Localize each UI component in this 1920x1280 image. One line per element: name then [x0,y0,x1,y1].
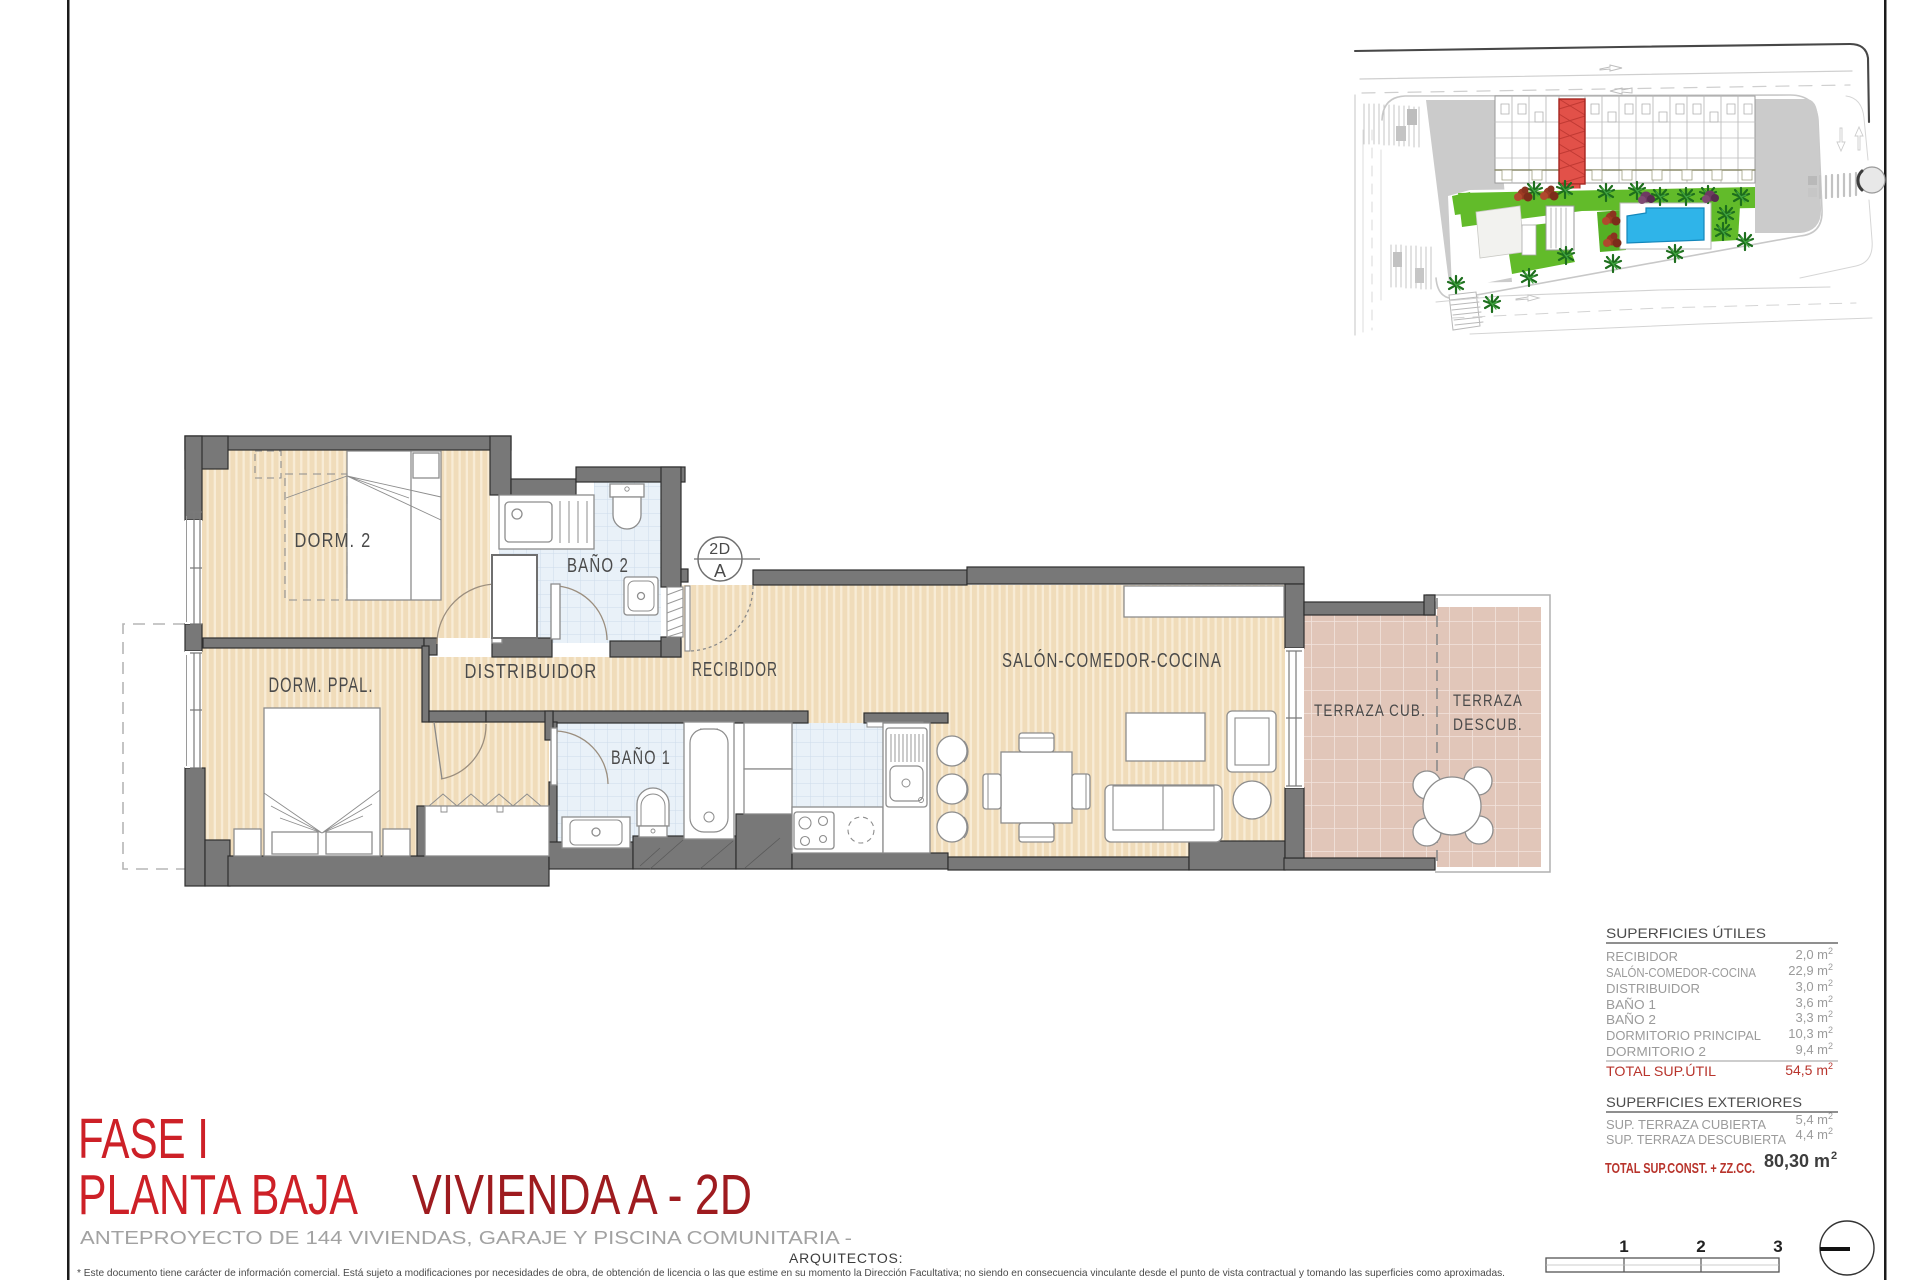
svg-text:22,9 m: 22,9 m [1788,963,1828,978]
svg-text:4,4 m: 4,4 m [1795,1127,1828,1142]
svg-text:3,0 m: 3,0 m [1795,979,1828,994]
svg-text:DISTRIBUIDOR: DISTRIBUIDOR [465,661,598,683]
svg-text:TERRAZA: TERRAZA [1453,691,1523,710]
svg-text:TOTAL SUP.CONST. + ZZ.CC.: TOTAL SUP.CONST. + ZZ.CC. [1605,1160,1755,1177]
svg-text:PLANTA BAJA: PLANTA BAJA [78,1163,358,1227]
svg-text:2: 2 [1828,1111,1833,1121]
svg-text:BAÑO 1: BAÑO 1 [1606,997,1656,1012]
svg-text:2: 2 [1828,946,1833,956]
svg-text:SUP. TERRAZA CUBIERTA: SUP. TERRAZA CUBIERTA [1606,1117,1766,1132]
svg-text:3,6 m: 3,6 m [1795,995,1828,1010]
svg-text:80,30 m: 80,30 m [1764,1151,1830,1171]
svg-text:FASE I: FASE I [78,1107,209,1171]
svg-text:A: A [714,561,726,581]
svg-text:DORMITORIO PRINCIPAL: DORMITORIO PRINCIPAL [1606,1028,1761,1043]
svg-text:2: 2 [1828,978,1833,988]
svg-text:TOTAL SUP.ÚTIL: TOTAL SUP.ÚTIL [1606,1063,1716,1079]
svg-text:2: 2 [1828,1041,1833,1051]
svg-text:1: 1 [1619,1237,1628,1256]
svg-text:2: 2 [1828,1126,1833,1136]
svg-text:RECIBIDOR: RECIBIDOR [692,659,778,681]
svg-text:TERRAZA CUB.: TERRAZA CUB. [1314,701,1426,720]
svg-text:2D: 2D [709,541,730,558]
svg-text:2: 2 [1828,1025,1833,1035]
svg-text:2: 2 [1828,1009,1833,1019]
svg-text:9,4 m: 9,4 m [1795,1042,1828,1057]
svg-text:DESCUB.: DESCUB. [1453,715,1523,734]
svg-text:2: 2 [1696,1237,1705,1256]
svg-text:ANTEPROYECTO DE 144 VIVIENDAS,: ANTEPROYECTO DE 144 VIVIENDAS, GARAJE Y … [80,1228,852,1248]
svg-text:SALÓN-COMEDOR-COCINA: SALÓN-COMEDOR-COCINA [1002,649,1222,672]
svg-text:BAÑO 2: BAÑO 2 [1606,1012,1656,1027]
svg-text:ARQUITECTOS:: ARQUITECTOS: [789,1250,903,1266]
svg-text:* Este documento tiene carácte: * Este documento tiene carácter de infor… [77,1268,1505,1279]
svg-text:54,5 m: 54,5 m [1785,1062,1828,1078]
svg-text:SUP. TERRAZA DESCUBIERTA: SUP. TERRAZA DESCUBIERTA [1606,1132,1786,1147]
svg-text:SUPERFICIES EXTERIORES: SUPERFICIES EXTERIORES [1606,1094,1802,1110]
svg-text:2,0 m: 2,0 m [1795,947,1828,962]
svg-text:RECIBIDOR: RECIBIDOR [1606,949,1678,964]
svg-text:2: 2 [1828,994,1833,1004]
svg-text:2: 2 [1828,1061,1833,1071]
svg-text:DORM. PPAL.: DORM. PPAL. [269,674,374,697]
svg-text:BAÑO 1: BAÑO 1 [611,747,671,769]
svg-text:3,3 m: 3,3 m [1795,1010,1828,1025]
svg-text:DISTRIBUIDOR: DISTRIBUIDOR [1606,981,1700,996]
svg-text:DORM. 2: DORM. 2 [295,530,372,552]
svg-text:SALÓN-COMEDOR-COCINA: SALÓN-COMEDOR-COCINA [1606,965,1756,980]
svg-text:5,4 m: 5,4 m [1795,1112,1828,1127]
svg-text:2: 2 [1831,1150,1837,1162]
svg-text:3: 3 [1773,1237,1782,1256]
svg-text:VIVIENDA A - 2D: VIVIENDA A - 2D [412,1163,752,1227]
svg-text:SUPERFICIES ÚTILES: SUPERFICIES ÚTILES [1606,925,1766,941]
svg-text:2: 2 [1828,962,1833,972]
svg-text:10,3 m: 10,3 m [1788,1026,1828,1041]
svg-text:DORMITORIO 2: DORMITORIO 2 [1606,1044,1706,1059]
svg-text:BAÑO 2: BAÑO 2 [567,553,629,577]
